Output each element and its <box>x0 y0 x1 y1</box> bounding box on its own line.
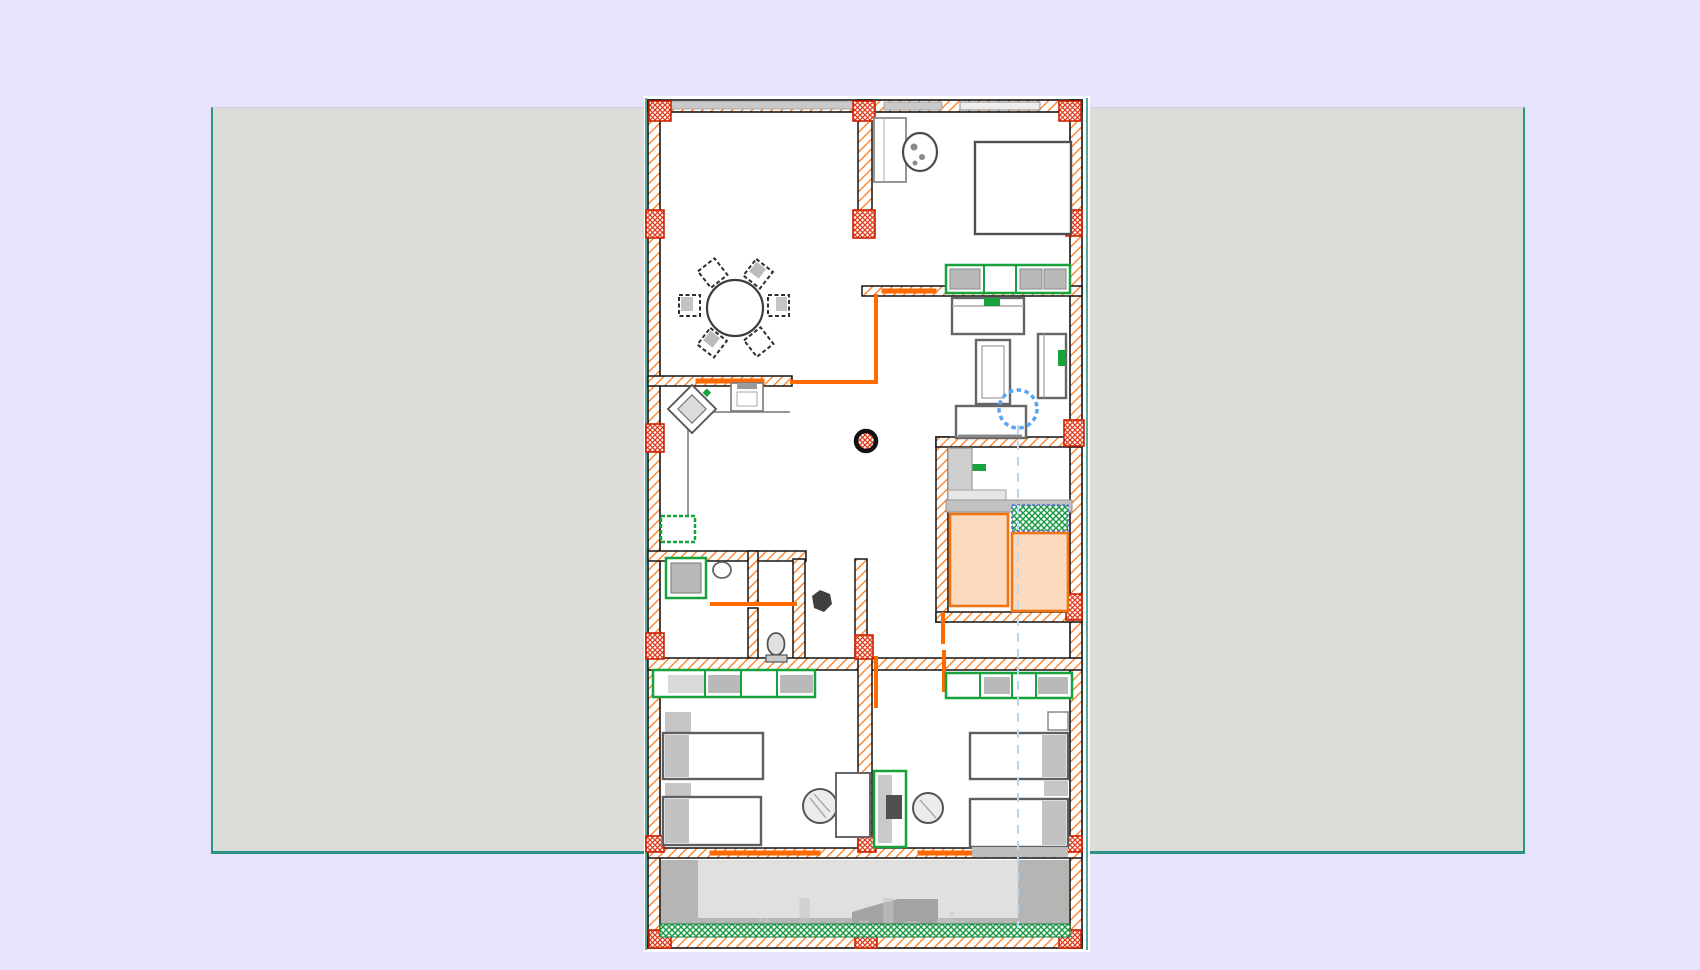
sofa-top-cushion-green <box>984 298 1000 306</box>
sofa-right-cushion-green <box>1058 350 1066 366</box>
bath-basin[interactable] <box>713 562 731 578</box>
bedroom-left-nightstand <box>665 783 691 796</box>
floor-plan-drawing[interactable]: خطسات <box>640 94 1092 956</box>
bedroom-left-desk[interactable] <box>836 773 870 837</box>
bedroom-right-nightstand <box>1048 712 1068 730</box>
wall-bath-right-lower <box>748 608 758 662</box>
wall-wc-right <box>793 559 805 665</box>
majlis-desk[interactable] <box>874 118 906 182</box>
column-mid-1 <box>853 210 875 238</box>
column-top-left <box>649 101 671 121</box>
bedroom-right-bed-2-pillow <box>1042 801 1066 845</box>
wall-master-bottom <box>936 612 1082 622</box>
column-right-2 <box>1064 420 1084 446</box>
wardrobe-right-box <box>984 677 1010 694</box>
window-top-right <box>960 102 1040 110</box>
wall-master-left <box>936 437 948 622</box>
column-top-mid <box>853 101 875 121</box>
wardrobe-right-box <box>1038 677 1068 694</box>
wc-toilet-bowl[interactable] <box>768 633 785 655</box>
app-canvas[interactable]: خطسات <box>0 0 1700 970</box>
master-bed-left[interactable] <box>950 514 1008 606</box>
ceiling-beam-dining <box>666 101 856 109</box>
column-left-1 <box>646 210 664 238</box>
kitchen-stove-inner <box>737 392 757 406</box>
master-nightstand-hatched[interactable] <box>1012 505 1068 531</box>
dining-chair-cushion <box>681 297 693 311</box>
column-top-right <box>1059 101 1081 121</box>
bedroom-left-chair[interactable] <box>803 789 837 823</box>
bedroom-right-pc <box>886 795 902 819</box>
bedroom-right-nightstand <box>1044 781 1068 796</box>
majlis-armchair-detail <box>913 161 918 166</box>
dining-chair-cushion <box>776 297 787 311</box>
wc-toilet-tank <box>766 655 787 662</box>
bedroom-left-nightstand <box>665 712 691 732</box>
master-bed-right[interactable] <box>1012 533 1068 611</box>
wall-bath-right-upper <box>748 551 758 603</box>
column-left-4 <box>646 836 664 852</box>
majlis-cabinet-box <box>1044 269 1066 289</box>
majlis-armchair-detail <box>911 144 918 151</box>
bedroom-right-floor-strip <box>972 847 1068 857</box>
bedroom-left-bed-1-pillow <box>665 735 689 777</box>
column-left-2 <box>646 424 664 452</box>
majlis-cabinet-box <box>950 269 980 289</box>
majlis-armchair[interactable] <box>903 133 937 171</box>
column-round-center <box>856 431 876 451</box>
majlis-cabinet-box <box>1020 269 1042 289</box>
kitchen-fridge[interactable] <box>661 516 695 542</box>
sofa-bottom[interactable] <box>956 406 1026 438</box>
dining-table[interactable] <box>707 280 763 336</box>
plan-shape-layer: خطسات <box>644 96 1090 956</box>
bedroom-right-bed-1-pillow <box>1042 735 1066 777</box>
majlis-armchair-detail <box>919 154 925 160</box>
kitchen-stove-top <box>737 383 757 389</box>
ceiling-beam-majlis <box>884 102 942 110</box>
bedroom-left-bed-2-pillow <box>665 799 689 843</box>
majlis-table[interactable] <box>975 142 1071 234</box>
wardrobe-left-box <box>708 675 741 693</box>
terrace-window-strip <box>660 924 1070 937</box>
wardrobe-left-box <box>668 675 704 693</box>
column-mid-2 <box>855 635 873 659</box>
shower-base <box>671 563 701 593</box>
wardrobe-left-box <box>780 675 813 693</box>
column-left-3 <box>646 633 664 659</box>
